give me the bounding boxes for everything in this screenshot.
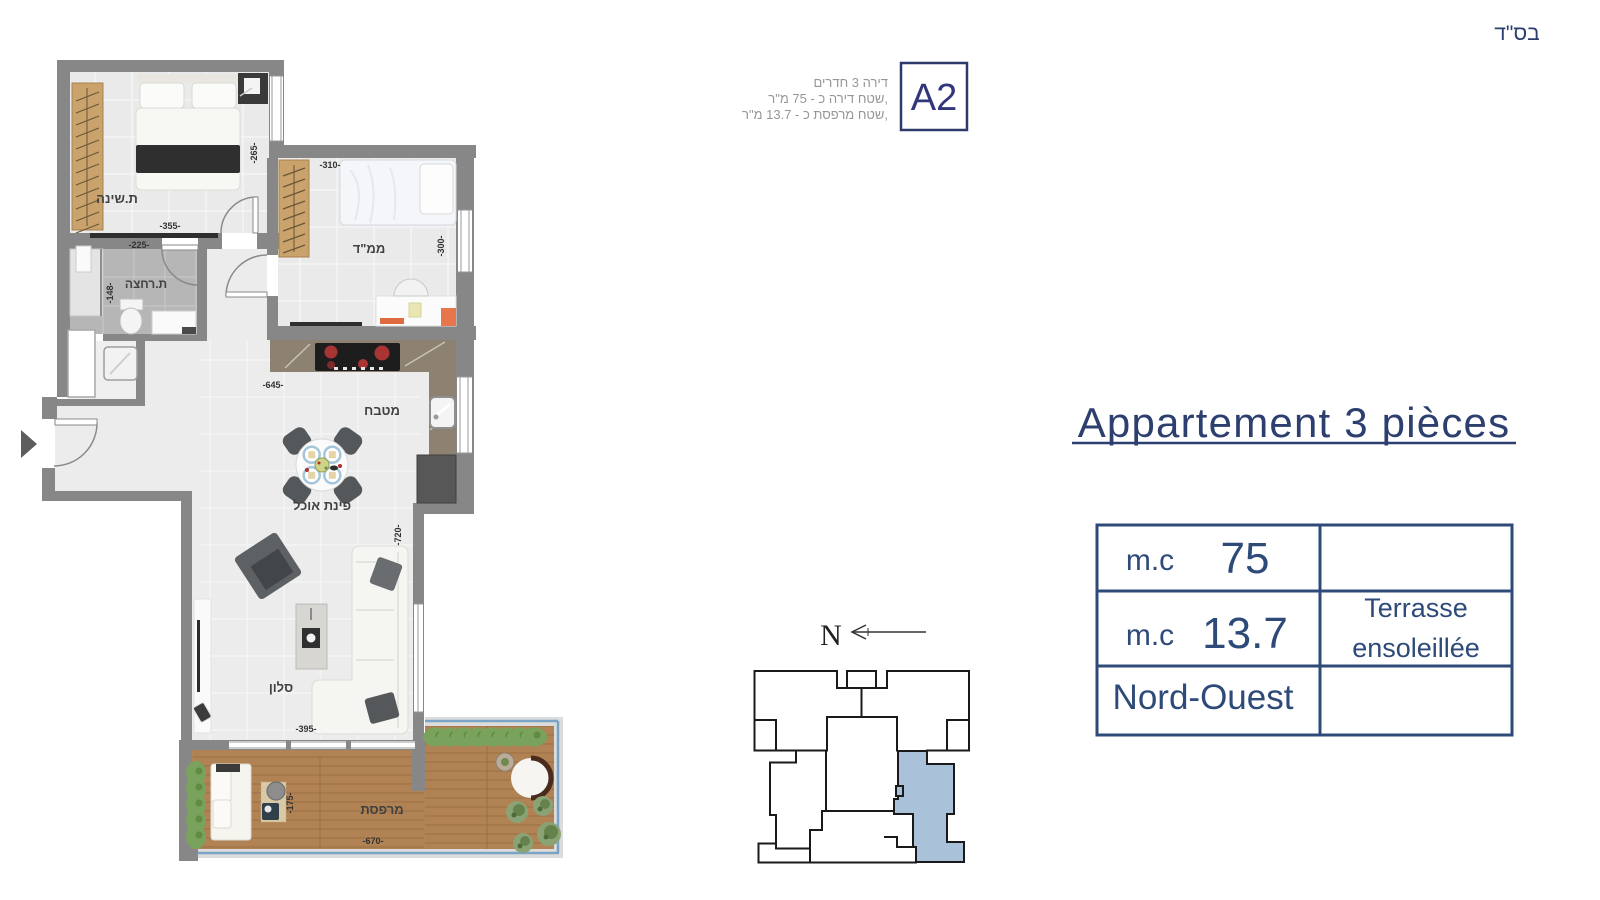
svg-text:-310-: -310- <box>319 160 340 170</box>
svg-text:-670-: -670- <box>362 836 383 846</box>
svg-text:ת.רחצה: ת.רחצה <box>125 277 167 291</box>
svg-text:בס"ד: בס"ד <box>1494 22 1539 45</box>
svg-text:Appartement 3 pièces: Appartement 3 pièces <box>1078 399 1511 446</box>
svg-text:N: N <box>820 619 842 652</box>
svg-text:-720-: -720- <box>393 524 403 545</box>
svg-text:-148-: -148- <box>105 282 115 303</box>
svg-text:13.7: 13.7 <box>1202 609 1288 658</box>
svg-text:-300-: -300- <box>436 235 446 256</box>
svg-text:m.c: m.c <box>1126 544 1174 577</box>
svg-text:שטח דירה כ - 75 מ"ר,: שטח דירה כ - 75 מ"ר, <box>768 91 888 106</box>
svg-text:שטח מרפסת כ - 13.7 מ"ר,: שטח מרפסת כ - 13.7 מ"ר, <box>742 107 888 122</box>
svg-text:ממ"ד: ממ"ד <box>353 241 386 256</box>
svg-text:פינת אוכל: פינת אוכל <box>293 498 351 513</box>
svg-text:Nord-Ouest: Nord-Ouest <box>1113 678 1294 717</box>
svg-text:סלון: סלון <box>269 680 293 695</box>
svg-text:-645-: -645- <box>262 380 283 390</box>
svg-text:מטבח: מטבח <box>364 403 400 418</box>
svg-text:m.c: m.c <box>1126 619 1174 652</box>
svg-text:A2: A2 <box>911 77 957 119</box>
svg-text:דירה 3 חדרים: דירה 3 חדרים <box>814 75 889 90</box>
svg-text:ensoleillée: ensoleillée <box>1352 633 1480 663</box>
svg-text:75: 75 <box>1221 534 1270 583</box>
svg-text:-265-: -265- <box>249 142 259 163</box>
svg-text:-175-: -175- <box>285 792 295 813</box>
svg-text:-395-: -395- <box>295 724 316 734</box>
svg-text:מרפסת: מרפסת <box>360 802 403 817</box>
svg-text:-225-: -225- <box>128 240 149 250</box>
svg-text:ת.שינה: ת.שינה <box>96 191 138 206</box>
svg-text:Terrasse: Terrasse <box>1364 593 1468 623</box>
svg-text:-355-: -355- <box>159 221 180 231</box>
